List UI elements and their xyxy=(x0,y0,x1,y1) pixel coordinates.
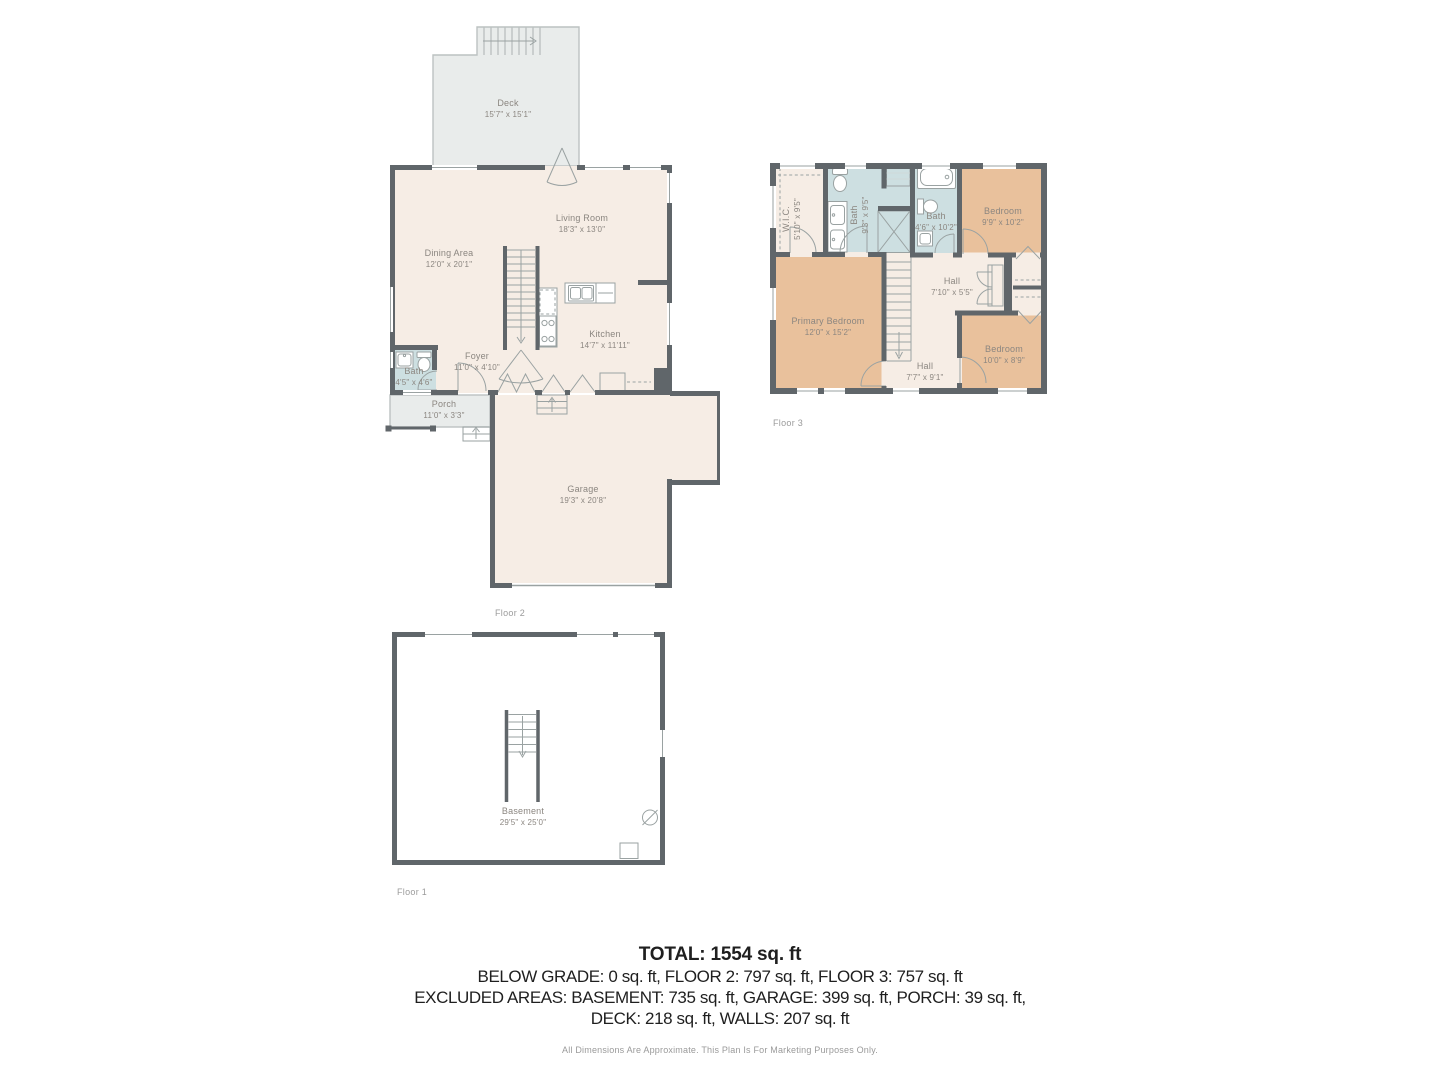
room-name: Dining Area xyxy=(425,248,474,260)
room-name: Bedroom xyxy=(982,206,1024,218)
room-label-bedroom-top: Bedroom 9'9" x 10'2" xyxy=(982,206,1024,228)
room-label-wic: W.I.C. 5'10" x 9'5" xyxy=(781,198,803,240)
room-dims: 14'7" x 11'11" xyxy=(580,341,630,352)
room-dims: 10'0" x 8'9" xyxy=(983,356,1025,367)
room-dims: 7'10" x 5'5" xyxy=(931,288,973,299)
floor3-plan xyxy=(765,155,1065,435)
room-label-dining-area: Dining Area 12'0" x 20'1" xyxy=(425,248,474,270)
room-name: Bath xyxy=(915,211,957,223)
room-dims: 18'3" x 13'0" xyxy=(556,225,608,236)
room-label-garage: Garage 19'3" x 20'8" xyxy=(560,484,606,506)
total-area: TOTAL: 1554 sq. ft xyxy=(0,944,1440,966)
floorplan-page: Deck 15'7" x 15'1" Living Room 18'3" x 1… xyxy=(0,0,1440,1080)
staircase xyxy=(507,710,539,802)
room-dims: 9'3" x 9'5" xyxy=(861,196,872,233)
room-dims: 19'3" x 20'8" xyxy=(560,496,606,507)
room-label-foyer: Foyer 11'0" x 4'10" xyxy=(454,351,500,373)
excluded-areas-continued: DECK: 218 sq. ft, WALLS: 207 sq. ft xyxy=(0,1008,1440,1029)
excluded-areas: EXCLUDED AREAS: BASEMENT: 735 sq. ft, GA… xyxy=(0,987,1440,1008)
room-name: Bedroom xyxy=(983,344,1025,356)
room-label-bath-large: Bath 9'3" x 9'5" xyxy=(849,196,871,233)
room-dims: 12'0" x 15'2" xyxy=(791,328,864,339)
room-label-basement: Basement 29'5" x 25'0" xyxy=(500,806,546,828)
room-dims: 4'6" x 10'2" xyxy=(915,223,957,234)
room-name: Porch xyxy=(423,399,464,411)
room-dims: 7'7" x 9'1" xyxy=(906,373,943,384)
floor1-plan xyxy=(385,620,685,910)
toilet xyxy=(417,352,431,358)
floor3-caption: Floor 3 xyxy=(773,418,803,428)
room-dims: 11'0" x 4'10" xyxy=(454,363,500,374)
floor1-caption: Floor 1 xyxy=(397,887,427,897)
room-label-deck: Deck 15'7" x 15'1" xyxy=(485,98,531,120)
deck-area xyxy=(433,27,579,166)
room-label-living-room: Living Room 18'3" x 13'0" xyxy=(556,213,608,235)
room-name: Bath xyxy=(395,366,432,378)
area-summary: TOTAL: 1554 sq. ft BELOW GRADE: 0 sq. ft… xyxy=(0,944,1440,1029)
room-name: Deck xyxy=(485,98,531,110)
room-dims: 4'5" x 4'6" xyxy=(395,378,432,389)
room-dims: 9'9" x 10'2" xyxy=(982,218,1024,229)
room-dims: 5'10" x 9'5" xyxy=(793,198,804,240)
room-name: Bath xyxy=(849,196,861,233)
room-name: Hall xyxy=(931,276,973,288)
room-name: Hall xyxy=(906,361,943,373)
room-dims: 15'7" x 15'1" xyxy=(485,110,531,121)
room-dims: 29'5" x 25'0" xyxy=(500,818,546,829)
floor-areas: BELOW GRADE: 0 sq. ft, FLOOR 2: 797 sq. … xyxy=(0,966,1440,987)
room-label-bath: Bath 4'5" x 4'6" xyxy=(395,366,432,388)
disclaimer-text: All Dimensions Are Approximate. This Pla… xyxy=(0,1045,1440,1055)
room-label-hall-lower: Hall 7'7" x 9'1" xyxy=(906,361,943,383)
room-label-hall-upper: Hall 7'10" x 5'5" xyxy=(931,276,973,298)
room-name: Living Room xyxy=(556,213,608,225)
room-name: W.I.C. xyxy=(781,198,793,240)
room-name: Kitchen xyxy=(580,329,630,341)
room-name: Primary Bedroom xyxy=(791,316,864,328)
windows xyxy=(425,632,665,757)
room-name: Foyer xyxy=(454,351,500,363)
room-label-kitchen: Kitchen 14'7" x 11'11" xyxy=(580,329,630,351)
room-label-bedroom-bottom: Bedroom 10'0" x 8'9" xyxy=(983,344,1025,366)
room-name: Garage xyxy=(560,484,606,496)
room-label-bath-small: Bath 4'6" x 10'2" xyxy=(915,211,957,233)
room-dims: 12'0" x 20'1" xyxy=(425,260,474,271)
basement-outline xyxy=(395,635,663,863)
room-dims: 11'0" x 3'3" xyxy=(423,411,464,422)
room-label-porch: Porch 11'0" x 3'3" xyxy=(423,399,464,421)
room-name: Basement xyxy=(500,806,546,818)
room-label-primary-bedroom: Primary Bedroom 12'0" x 15'2" xyxy=(791,316,864,338)
floor2-caption: Floor 2 xyxy=(495,608,525,618)
garage-extension-floor xyxy=(670,396,719,480)
utility-symbol xyxy=(620,810,658,859)
floor2-plan xyxy=(385,20,720,600)
